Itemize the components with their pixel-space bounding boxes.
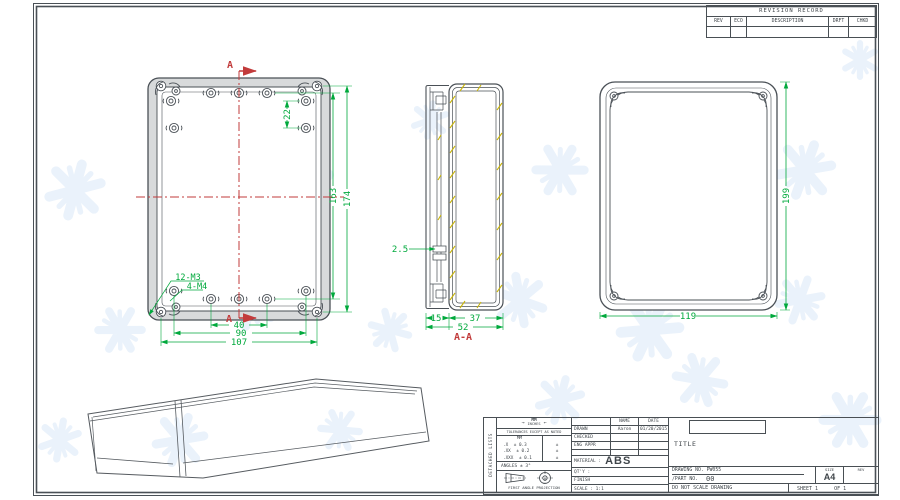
- first-angle-target-icon: [537, 471, 553, 485]
- approvals-block: NAME DATE DRAWN Aaron 01/20/2015 CHECKED…: [572, 418, 669, 492]
- rev-label: REV: [858, 468, 865, 472]
- angles-tolerance: ANGLES ± 3°: [497, 462, 571, 471]
- part-no-value: 00: [706, 476, 714, 483]
- dim-22: 22: [283, 109, 293, 120]
- name-header: NAME: [611, 418, 639, 425]
- title-block-side-strip: DETACHED LISTS: [484, 418, 497, 492]
- arrow-right-icon: →: [521, 420, 524, 426]
- section-label-a-bottom: A: [226, 314, 232, 325]
- qty-label: QT'Y :: [574, 470, 590, 475]
- dim-107: 107: [231, 338, 247, 348]
- checked-row: CHECKED: [572, 434, 668, 442]
- title-area: TITLE DRAWING NO. PW055 /PART NO. 00 SIZ…: [669, 418, 878, 492]
- approvals-header-row: NAME DATE: [572, 418, 668, 426]
- dim-2-5: 2.5: [392, 245, 408, 255]
- arrow-left-icon: ←: [543, 420, 546, 426]
- drawn-row: DRAWN Aaron 01/20/2015: [572, 426, 668, 434]
- revision-col-chkd: CHKD: [849, 17, 876, 26]
- drawing-no: DRAWING NO. PW055: [672, 468, 804, 475]
- revision-table-title: REVISION RECORD: [706, 5, 877, 16]
- section-label-a-top: A: [227, 60, 233, 71]
- tolerances-table: MM .X ± 0.3 ± .XX ± 0.2 ± .XXX ± 0.1 ±: [497, 436, 571, 462]
- size-cell: SIZE A4: [816, 467, 844, 483]
- dim-199: 199: [782, 188, 792, 204]
- dim-37: 37: [470, 314, 481, 324]
- top-view: [600, 82, 777, 310]
- finish-label: FINISH: [574, 478, 590, 483]
- title-block-bottom-row: DO NOT SCALE DRAWING SHEET 1 OF 1: [669, 484, 878, 493]
- side-strip-label: DETACHED LISTS: [488, 433, 493, 477]
- drawing-number-area: DRAWING NO. PW055 /PART NO. 00 SIZE A4 R…: [669, 466, 878, 484]
- scale-row: SCALE : 1:1: [572, 485, 668, 494]
- tolerance-block: → MM INCHES ← TOLERANCES EXCEPT AS NOTED…: [497, 418, 572, 492]
- revision-table-empty-row: [706, 27, 877, 38]
- revision-col-description: DESCRIPTION: [747, 17, 829, 26]
- rev-cell: REV: [844, 467, 878, 483]
- revision-col-rev: REV: [707, 17, 731, 26]
- logo-box: [689, 420, 766, 434]
- dim-174: 174: [343, 191, 353, 207]
- units-secondary: INCHES: [528, 423, 541, 427]
- size-value: A4: [816, 472, 843, 482]
- material-row: MATERIAL : ABS: [572, 456, 668, 468]
- drawing-sheet: 22 163 174 40 90 107 12-M3 4-M4 2.5 15 3…: [0, 0, 900, 500]
- first-angle-cone-icon: [504, 474, 526, 483]
- date-header: DATE: [639, 418, 668, 425]
- dim-119: 119: [680, 312, 696, 322]
- do-not-scale-note: DO NOT SCALE DRAWING: [669, 484, 789, 493]
- finish-row: FINISH: [572, 477, 668, 485]
- qty-row: QT'Y :: [572, 468, 668, 477]
- projection-symbols: [497, 471, 571, 485]
- eng-appr-row: ENG APPR: [572, 442, 668, 450]
- title-block: DETACHED LISTS → MM INCHES ← TOLERANCES …: [483, 417, 879, 495]
- scale-label: SCALE : 1:1: [574, 487, 604, 492]
- part-no-label: /PART NO.: [672, 477, 698, 482]
- sheet-number: SHEET 1: [789, 486, 818, 492]
- revision-table-header-row: REV ECO DESCRIPTION DRFT CHKD: [706, 16, 877, 27]
- label-4-m4: 4-M4: [187, 282, 207, 292]
- isometric-view: [88, 379, 429, 478]
- material-label: MATERIAL :: [574, 459, 601, 464]
- title-label: TITLE: [674, 440, 697, 448]
- projection-label: FIRST ANGLE PROJECTION: [497, 485, 571, 490]
- sheet-of: OF 1: [834, 486, 846, 492]
- dim-15: 15: [431, 314, 442, 324]
- units-row: → MM INCHES ←: [497, 418, 571, 429]
- revision-table: REVISION RECORD REV ECO DESCRIPTION DRFT…: [706, 5, 877, 38]
- material-value: ABS: [605, 456, 631, 467]
- section-view-label: A-A: [454, 332, 472, 343]
- tolerances-heading: TOLERANCES EXCEPT AS NOTED: [497, 429, 571, 436]
- revision-col-drft: DRFT: [829, 17, 849, 26]
- revision-col-eco: ECO: [731, 17, 747, 26]
- dim-163: 163: [329, 188, 339, 204]
